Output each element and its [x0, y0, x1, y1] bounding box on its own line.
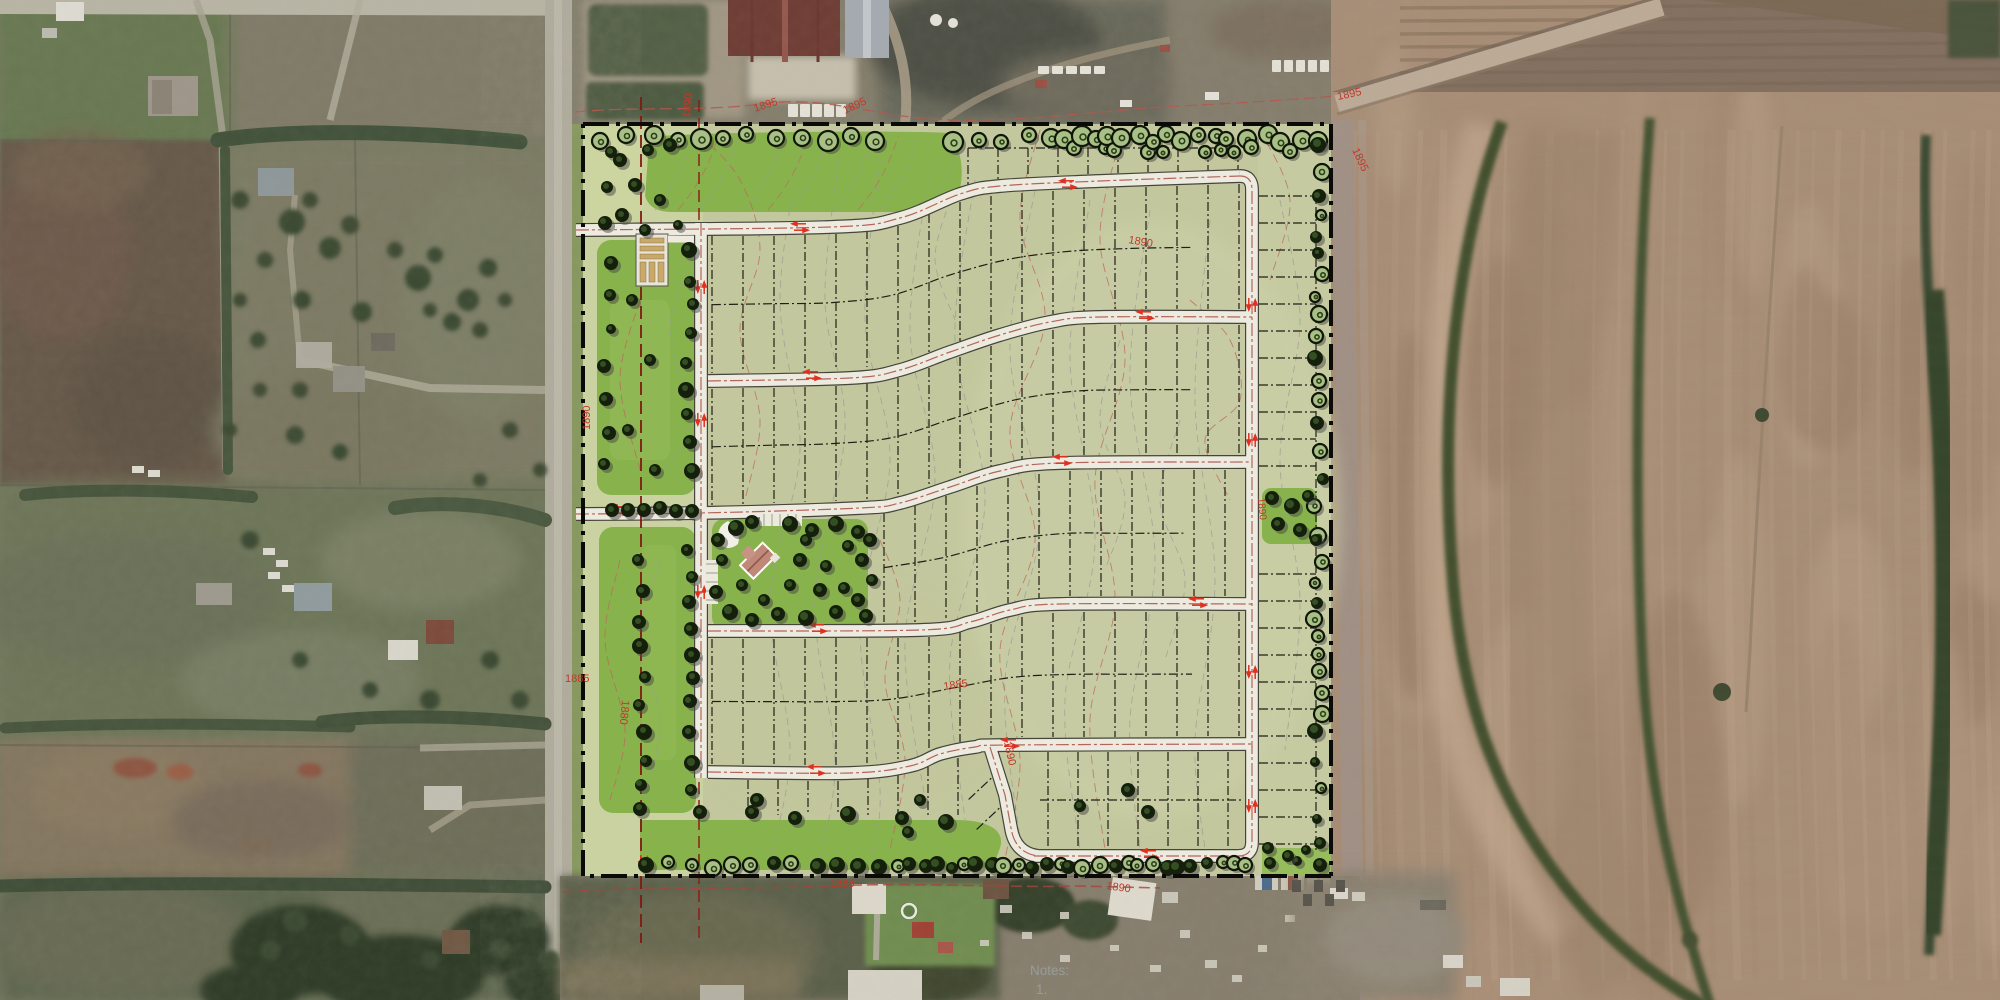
svg-text:1890: 1890 — [581, 406, 593, 430]
svg-text:1885: 1885 — [565, 673, 589, 685]
svg-text:Notes:: Notes: — [1030, 963, 1069, 978]
svg-text:1890: 1890 — [681, 93, 695, 118]
svg-text:1880: 1880 — [617, 700, 631, 725]
svg-text:1.: 1. — [1036, 982, 1047, 997]
svg-text:1890: 1890 — [1255, 497, 1268, 521]
svg-text:1885: 1885 — [830, 878, 854, 890]
